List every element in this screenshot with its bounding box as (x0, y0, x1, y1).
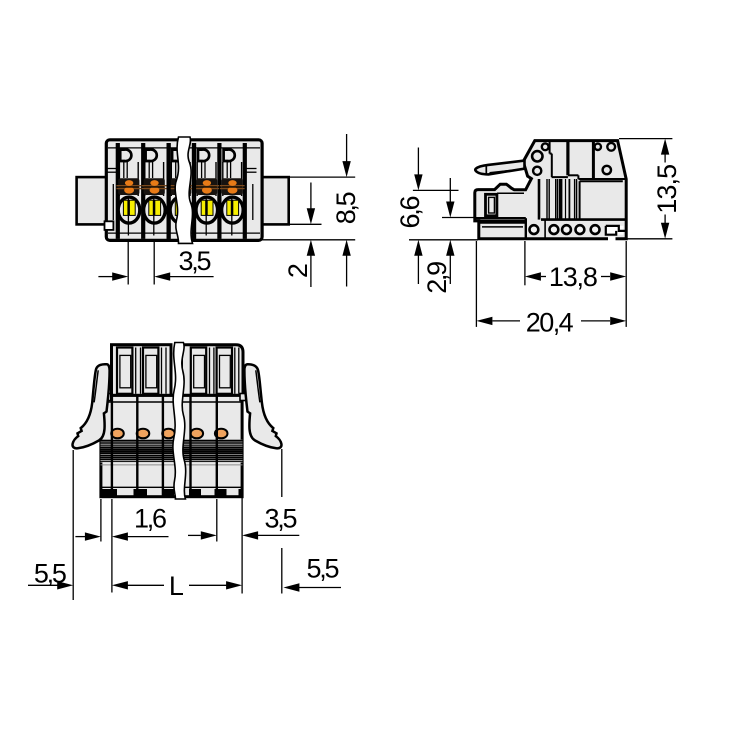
svg-text:2: 2 (283, 263, 313, 278)
svg-text:6,6: 6,6 (395, 196, 425, 229)
svg-text:5,5: 5,5 (34, 559, 67, 589)
svg-text:20,4: 20,4 (526, 307, 574, 337)
svg-text:13,5: 13,5 (652, 164, 682, 214)
svg-text:1,6: 1,6 (134, 504, 167, 534)
svg-text:3,5: 3,5 (179, 246, 212, 276)
svg-text:8,5: 8,5 (331, 191, 361, 224)
svg-text:L: L (169, 571, 184, 601)
svg-text:3,5: 3,5 (265, 504, 298, 534)
svg-text:2,9: 2,9 (422, 261, 452, 294)
svg-text:5,5: 5,5 (307, 554, 340, 584)
svg-text:13,8: 13,8 (549, 262, 598, 292)
